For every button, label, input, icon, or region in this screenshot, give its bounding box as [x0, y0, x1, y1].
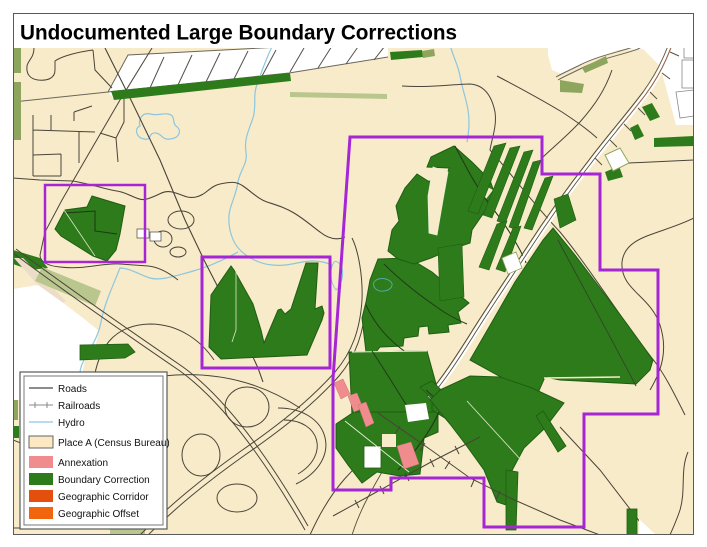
svg-text:Hydro: Hydro: [58, 418, 85, 429]
svg-text:Geographic Corridor: Geographic Corridor: [58, 492, 149, 503]
svg-text:Annexation: Annexation: [58, 458, 108, 469]
svg-text:Roads: Roads: [58, 384, 87, 395]
svg-text:Geographic Offset: Geographic Offset: [58, 509, 139, 520]
svg-text:Boundary Correction: Boundary Correction: [58, 475, 150, 486]
svg-text:Undocumented Large Boundary Co: Undocumented Large Boundary Corrections: [20, 21, 457, 45]
svg-text:Railroads: Railroads: [58, 401, 100, 412]
svg-text:Place A (Census Bureau): Place A (Census Bureau): [58, 438, 170, 449]
